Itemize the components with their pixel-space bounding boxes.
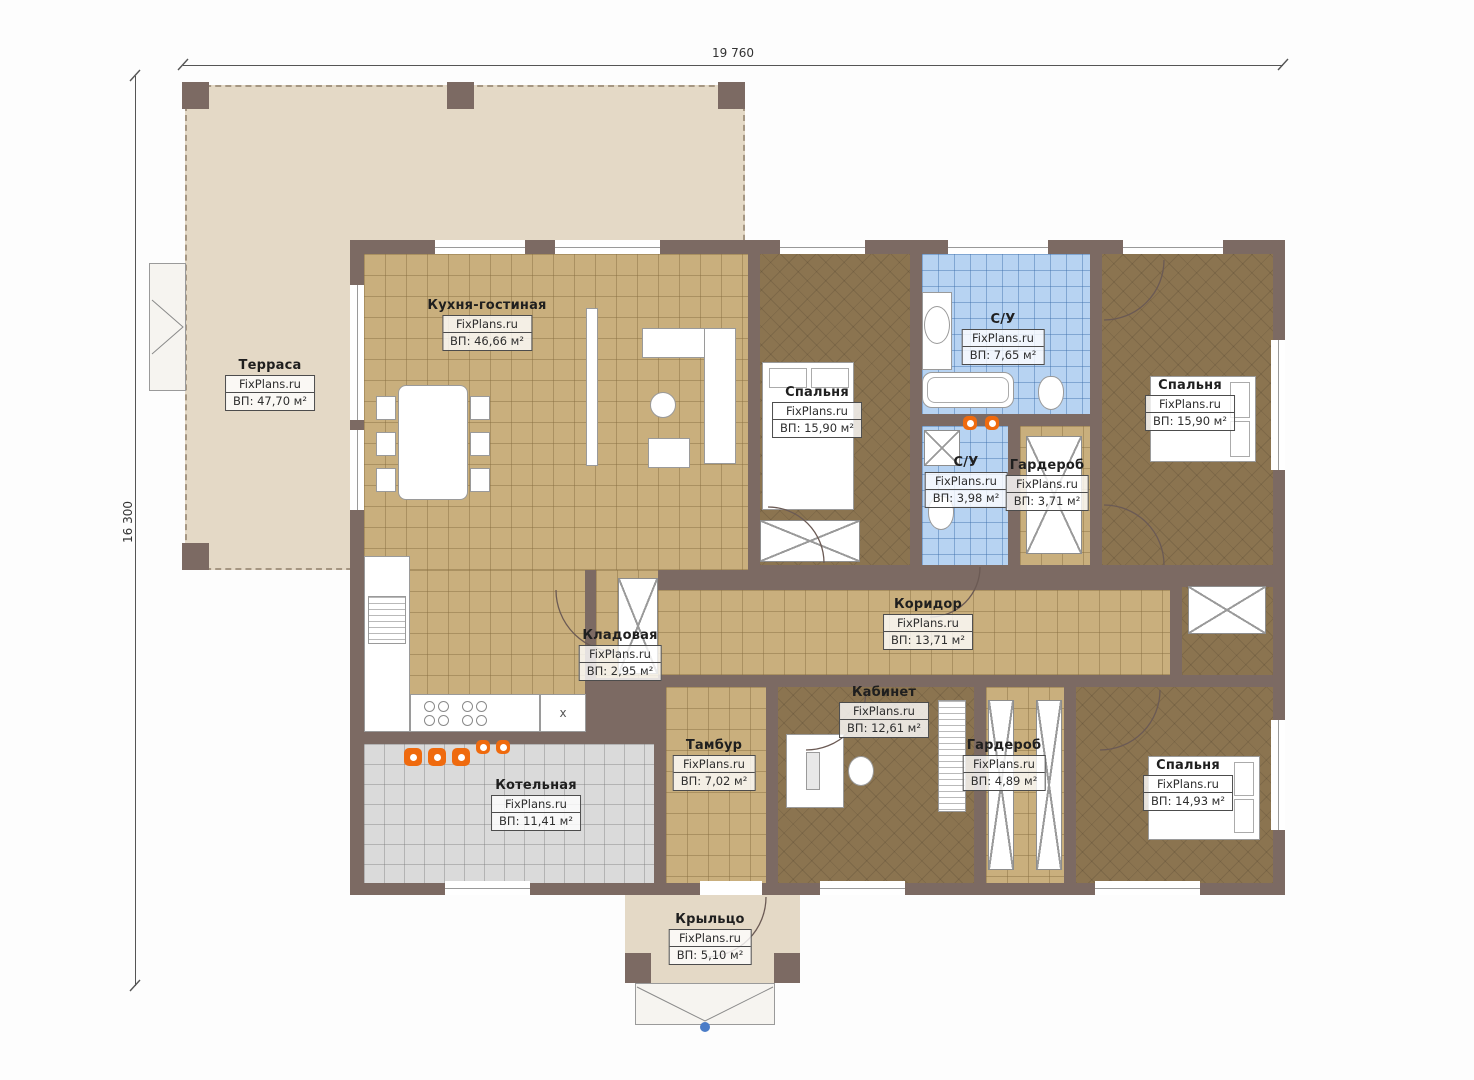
floor-plan-canvas: 19 760 16 300 <box>0 0 1474 1080</box>
dimension-line-left <box>135 76 136 986</box>
window <box>948 240 1048 254</box>
room-label-office: Кабинет FixPlans.ru ВП: 12,61 м² <box>839 685 929 738</box>
dimension-line-top <box>183 65 1283 66</box>
room-name: Кухня-гостиная <box>427 298 546 313</box>
room-label-bedroom2: Спальня FixPlans.ru ВП: 15,90 м² <box>1145 378 1235 431</box>
chair <box>470 468 490 492</box>
boiler-unit <box>428 748 446 766</box>
boiler-unit <box>404 748 422 766</box>
room-area: ВП: 12,61 м² <box>840 720 928 736</box>
watermark: FixPlans.ru <box>674 756 755 773</box>
stove-burner <box>462 715 473 726</box>
window <box>555 240 660 254</box>
room-name: Гардероб <box>1006 458 1089 473</box>
window <box>780 240 865 254</box>
room-area: ВП: 3,98 м² <box>926 490 1007 506</box>
room-label-wardrobe2: Гардероб FixPlans.ru ВП: 4,89 м² <box>963 738 1046 791</box>
kitchen-counter-bottom <box>410 694 540 732</box>
room-name: Тамбур <box>673 738 756 753</box>
room-info-box: FixPlans.ru ВП: 7,65 м² <box>962 329 1045 365</box>
room-name: Кабинет <box>839 685 929 700</box>
stove-burner <box>476 715 487 726</box>
entry-marker <box>700 1022 710 1032</box>
room-area: ВП: 14,93 м² <box>1144 793 1232 809</box>
window <box>1123 240 1223 254</box>
window <box>1271 720 1285 830</box>
window <box>445 881 530 895</box>
office-chair <box>848 756 874 786</box>
watermark: FixPlans.ru <box>1144 776 1232 793</box>
chair <box>470 396 490 420</box>
sofa-seat <box>642 328 706 358</box>
stove-burner <box>438 715 449 726</box>
room-name: Спальня <box>772 385 862 400</box>
room-name: С/У <box>925 455 1008 470</box>
room-name: С/У <box>962 312 1045 327</box>
room-area: ВП: 5,10 м² <box>670 947 751 963</box>
room-info-box: FixPlans.ru ВП: 46,66 м² <box>442 315 532 351</box>
room-label-corridor: Коридор FixPlans.ru ВП: 13,71 м² <box>883 597 973 650</box>
room-area: ВП: 2,95 м² <box>580 663 661 679</box>
room-info-box: FixPlans.ru ВП: 4,89 м² <box>963 755 1046 791</box>
room-area: ВП: 3,71 м² <box>1007 493 1088 509</box>
stove-burner <box>424 715 435 726</box>
kitchen-sink <box>368 596 406 644</box>
boiler-valve <box>476 740 490 754</box>
room-area: ВП: 4,89 м² <box>964 773 1045 789</box>
watermark: FixPlans.ru <box>840 703 928 720</box>
watermark: FixPlans.ru <box>670 930 751 947</box>
chair <box>376 432 396 456</box>
room-name: Спальня <box>1145 378 1235 393</box>
watermark: FixPlans.ru <box>773 403 861 420</box>
window <box>1095 881 1200 895</box>
stove-burner <box>424 701 435 712</box>
bathtub <box>922 372 1014 408</box>
room-name: Гардероб <box>963 738 1046 753</box>
porch-post <box>774 953 800 983</box>
room-name: Крыльцо <box>669 912 752 927</box>
room-area: ВП: 15,90 м² <box>773 420 861 436</box>
room-name: Кладовая <box>579 628 662 643</box>
stove-burner <box>476 701 487 712</box>
closet-shelving <box>1188 586 1266 634</box>
boiler-valve <box>496 740 510 754</box>
room-info-box: FixPlans.ru ВП: 7,02 м² <box>673 755 756 791</box>
boiler-unit <box>452 748 470 766</box>
room-label-bedroom3: Спальня FixPlans.ru ВП: 14,93 м² <box>1143 758 1233 811</box>
wardrobe-cabinet <box>760 520 860 562</box>
room-label-kitchen: Кухня-гостиная FixPlans.ru ВП: 46,66 м² <box>427 298 546 351</box>
room-info-box: FixPlans.ru ВП: 3,98 м² <box>925 472 1008 508</box>
room-label-bedroom1: Спальня FixPlans.ru ВП: 15,90 м² <box>772 385 862 438</box>
room-info-box: FixPlans.ru ВП: 5,10 м² <box>669 929 752 965</box>
room-info-box: FixPlans.ru ВП: 15,90 м² <box>1145 395 1235 431</box>
room-info-box: FixPlans.ru ВП: 13,71 м² <box>883 614 973 650</box>
room-name: Коридор <box>883 597 973 612</box>
dining-table <box>398 385 468 500</box>
room-area: ВП: 47,70 м² <box>226 393 314 409</box>
room-name: Котельная <box>491 778 581 793</box>
watermark: FixPlans.ru <box>492 796 580 813</box>
room-label-pantry: Кладовая FixPlans.ru ВП: 2,95 м² <box>579 628 662 681</box>
room-label-boiler: Котельная FixPlans.ru ВП: 11,41 м² <box>491 778 581 831</box>
plumbing-valve <box>963 416 977 430</box>
terrace-post <box>718 82 745 109</box>
plumbing-valve <box>985 416 999 430</box>
room-info-box: FixPlans.ru ВП: 14,93 м² <box>1143 775 1233 811</box>
terrace-post <box>182 543 209 570</box>
window <box>1271 340 1285 470</box>
room-info-box: FixPlans.ru ВП: 12,61 м² <box>839 702 929 738</box>
chair <box>470 432 490 456</box>
room-area: ВП: 13,71 м² <box>884 632 972 648</box>
terrace-steps <box>149 263 186 391</box>
armchair <box>648 438 690 468</box>
computer <box>806 752 820 790</box>
stove-burner <box>462 701 473 712</box>
terrace-post <box>447 82 474 109</box>
terrace-door-opening <box>350 285 364 420</box>
room-label-tambour: Тамбур FixPlans.ru ВП: 7,02 м² <box>673 738 756 791</box>
room-area: ВП: 7,65 м² <box>963 347 1044 363</box>
watermark: FixPlans.ru <box>1146 396 1234 413</box>
room-name: Терраса <box>225 358 315 373</box>
watermark: FixPlans.ru <box>963 330 1044 347</box>
kitchen-cabinet-x: x <box>540 694 586 732</box>
kitchen-counter-left <box>364 556 410 732</box>
terrace-post <box>182 82 209 109</box>
room-label-porch: Крыльцо FixPlans.ru ВП: 5,10 м² <box>669 912 752 965</box>
room-info-box: FixPlans.ru ВП: 15,90 м² <box>772 402 862 438</box>
sink <box>924 306 950 344</box>
watermark: FixPlans.ru <box>964 756 1045 773</box>
watermark: FixPlans.ru <box>580 646 661 663</box>
room-label-wardrobe1: Гардероб FixPlans.ru ВП: 3,71 м² <box>1006 458 1089 511</box>
stove-burner <box>438 701 449 712</box>
room-label-terrace: Терраса FixPlans.ru ВП: 47,70 м² <box>225 358 315 411</box>
coffee-table <box>650 392 676 418</box>
room-area: ВП: 7,02 м² <box>674 773 755 789</box>
dimension-label-left: 16 300 <box>121 501 135 543</box>
window <box>435 240 525 254</box>
room-area: ВП: 15,90 м² <box>1146 413 1234 429</box>
room-info-box: FixPlans.ru ВП: 2,95 м² <box>579 645 662 681</box>
dimension-label-top: 19 760 <box>712 46 754 60</box>
room-name: Спальня <box>1143 758 1233 773</box>
window <box>350 430 364 510</box>
room-info-box: FixPlans.ru ВП: 11,41 м² <box>491 795 581 831</box>
watermark: FixPlans.ru <box>926 473 1007 490</box>
porch-steps <box>635 983 775 1025</box>
toilet <box>1038 376 1064 410</box>
room-area: ВП: 11,41 м² <box>492 813 580 829</box>
room-info-box: FixPlans.ru ВП: 47,70 м² <box>225 375 315 411</box>
tv-stand <box>586 308 598 466</box>
window <box>820 881 905 895</box>
watermark: FixPlans.ru <box>443 316 531 333</box>
room-area: ВП: 46,66 м² <box>443 333 531 349</box>
room-label-bath1: С/У FixPlans.ru ВП: 7,65 м² <box>962 312 1045 365</box>
watermark: FixPlans.ru <box>1007 476 1088 493</box>
watermark: FixPlans.ru <box>884 615 972 632</box>
watermark: FixPlans.ru <box>226 376 314 393</box>
room-label-bath2: С/У FixPlans.ru ВП: 3,98 м² <box>925 455 1008 508</box>
porch-post <box>625 953 651 983</box>
entrance-door-opening <box>700 881 762 895</box>
sofa-back <box>704 328 736 464</box>
room-info-box: FixPlans.ru ВП: 3,71 м² <box>1006 475 1089 511</box>
chair <box>376 396 396 420</box>
chair <box>376 468 396 492</box>
